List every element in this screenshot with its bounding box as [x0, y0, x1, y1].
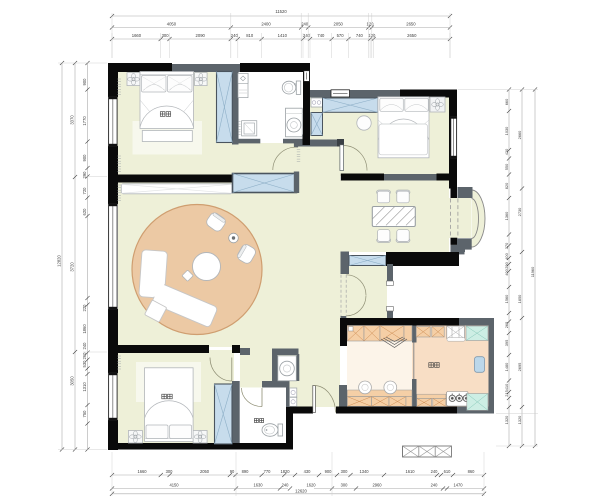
svg-text:1770: 1770 [82, 116, 87, 126]
svg-text:2730: 2730 [517, 207, 522, 216]
svg-text:750: 750 [82, 410, 87, 418]
svg-text:2050: 2050 [334, 21, 344, 26]
svg-text:2650: 2650 [407, 33, 417, 38]
svg-text:395: 395 [504, 340, 509, 347]
svg-text:120: 120 [368, 33, 376, 38]
svg-text:260: 260 [82, 352, 87, 360]
svg-text:860: 860 [468, 469, 476, 474]
svg-text:290: 290 [82, 171, 87, 179]
svg-text:2050: 2050 [200, 469, 210, 474]
svg-text:120: 120 [367, 21, 375, 26]
svg-text:550: 550 [504, 163, 509, 170]
svg-text:1560: 1560 [504, 294, 509, 303]
svg-text:1820: 1820 [280, 469, 290, 474]
svg-text:300: 300 [162, 33, 170, 38]
svg-text:300: 300 [341, 469, 349, 474]
svg-text:420: 420 [504, 148, 509, 155]
svg-text:240: 240 [301, 21, 309, 26]
svg-text:2695: 2695 [517, 363, 522, 372]
svg-text:215: 215 [504, 390, 509, 397]
svg-text:1360: 1360 [504, 211, 509, 220]
svg-text:770: 770 [264, 469, 272, 474]
svg-text:1030: 1030 [504, 126, 509, 135]
svg-text:2960: 2960 [372, 482, 382, 487]
svg-text:1320: 1320 [504, 415, 509, 424]
svg-text:1660: 1660 [137, 469, 147, 474]
svg-text:4050: 4050 [167, 21, 177, 26]
svg-text:1850: 1850 [517, 294, 522, 303]
svg-text:300: 300 [166, 469, 174, 474]
svg-text:1480: 1480 [504, 362, 509, 371]
svg-text:900: 900 [82, 154, 87, 162]
svg-text:240: 240 [231, 33, 239, 38]
svg-text:660: 660 [504, 98, 509, 105]
svg-text:11960: 11960 [530, 266, 535, 277]
svg-text:1470: 1470 [453, 482, 463, 487]
svg-text:1860: 1860 [82, 324, 87, 334]
svg-text:240: 240 [282, 482, 290, 487]
svg-text:3720: 3720 [70, 262, 75, 272]
svg-text:1310: 1310 [82, 382, 87, 392]
svg-text:370: 370 [504, 242, 509, 249]
svg-text:900: 900 [82, 78, 87, 86]
svg-text:1660: 1660 [132, 33, 142, 38]
svg-text:90: 90 [230, 469, 235, 474]
svg-text:240: 240 [431, 482, 439, 487]
svg-text:11520: 11520 [275, 9, 287, 14]
svg-text:430: 430 [304, 469, 312, 474]
svg-text:2660: 2660 [517, 130, 522, 139]
svg-text:820: 820 [504, 182, 509, 189]
svg-text:610: 610 [444, 469, 452, 474]
svg-text:12620: 12620 [295, 488, 307, 493]
svg-text:1630: 1630 [253, 482, 263, 487]
svg-text:12820: 12820 [57, 255, 62, 267]
svg-text:3370: 3370 [70, 115, 75, 125]
svg-text:4150: 4150 [169, 482, 179, 487]
svg-text:1410: 1410 [278, 33, 288, 38]
svg-text:1340: 1340 [359, 469, 369, 474]
svg-text:240: 240 [431, 469, 439, 474]
svg-text:2400: 2400 [261, 21, 271, 26]
svg-text:2090: 2090 [196, 33, 206, 38]
svg-text:300: 300 [341, 482, 349, 487]
svg-text:570: 570 [337, 33, 345, 38]
svg-text:720: 720 [82, 187, 87, 195]
svg-text:900: 900 [325, 469, 333, 474]
svg-text:810: 810 [246, 33, 254, 38]
svg-text:620: 620 [82, 208, 87, 216]
svg-text:240: 240 [82, 342, 87, 350]
svg-text:1320: 1320 [517, 415, 522, 424]
svg-text:1610: 1610 [405, 469, 415, 474]
svg-text:240: 240 [303, 33, 311, 38]
svg-text:740: 740 [317, 33, 325, 38]
svg-text:3050: 3050 [70, 376, 75, 386]
svg-text:890: 890 [242, 469, 250, 474]
svg-text:1620: 1620 [306, 482, 316, 487]
svg-text:220: 220 [82, 304, 87, 312]
svg-text:2650: 2650 [406, 21, 416, 26]
svg-text:410: 410 [504, 383, 509, 390]
svg-text:740: 740 [356, 33, 364, 38]
